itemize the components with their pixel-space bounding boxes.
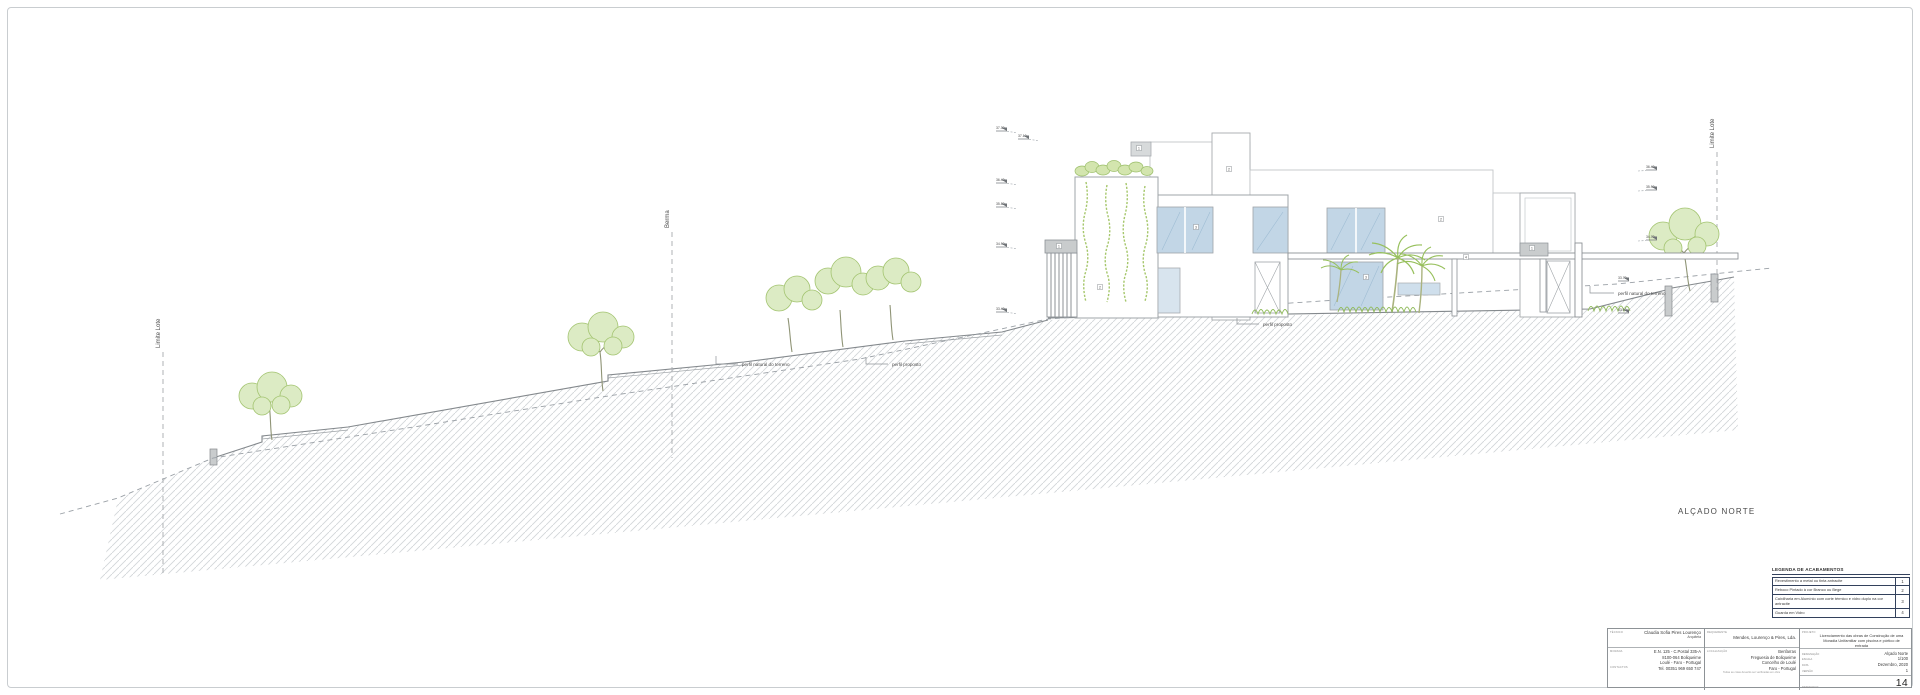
window [1327,208,1385,253]
architect-label: técnico [1610,631,1623,634]
title-block: técnico Claudia Sofia Pires Lourenço Arq… [1607,628,1912,688]
perfil-natural-label-right: perfil natural do terreno [1618,291,1666,296]
glass-door [1547,261,1570,313]
tree [1649,208,1719,291]
drawing-title: ALÇADO NORTE [1678,507,1755,516]
title-block-architect: técnico Claudia Sofia Pires Lourenço Arq… [1608,629,1705,690]
keynote: 4 [1465,256,1467,260]
sheet-number: 14 [1896,677,1908,689]
window [1253,207,1288,253]
keynote: 3 [1365,276,1367,280]
berma-label: Berma [665,210,671,228]
sheet-number-label: desenho nº [1802,686,1818,689]
entrance-fence [1045,240,1077,317]
keynote: 2 [1440,218,1442,222]
title-block-note: Todas as cotas deverão ser verificadas e… [1707,671,1796,674]
legend-row: Guarda em Vidro 4 [1773,609,1909,617]
limite-lote-left-label: Limite Lote [156,318,162,348]
project-label: projeto [1802,631,1816,634]
pool-edge [1398,283,1440,295]
address-label: morada [1610,650,1623,653]
keynote: 1 [1531,247,1533,251]
elevation-markers-left: 37.30 37.10 36.40 35.80 34.90 33.40 [996,126,1038,314]
glass-door [1255,262,1280,313]
keynote: 1 [1138,147,1140,151]
legend-row: Revestimento a metal ou tinta antracite … [1773,578,1909,587]
location-label: localização [1707,650,1727,653]
contact-label: contactos [1610,666,1628,669]
legend-row-number: 4 [1895,609,1909,617]
keynote: 2 [1099,286,1101,290]
tree-cluster [766,257,921,352]
tree [239,372,302,440]
title-block-project: projeto Licenciamento das obras de Const… [1800,629,1911,690]
window [1158,268,1180,313]
elevation-drawing: Limite Lote Berma Limite Lote [0,0,1920,695]
project-description: Licenciamento das obras de Construção de… [1802,630,1908,650]
terrain-hatch [100,277,1738,580]
legend-title: LEGENDA DE ACABAMENTOS [1772,567,1910,575]
legend-row-text: Revestimento a metal ou tinta antracite [1773,578,1895,586]
pergola-post [1540,259,1546,312]
window [1157,207,1213,253]
legend-row-text: Guarda em Vidro [1773,609,1895,617]
legend-row-text: Caixilharia em Alumínio com corte térmic… [1773,595,1895,608]
keynote: 3 [1195,226,1197,230]
keynote: 1 [1058,245,1060,249]
legend-row-number: 2 [1895,586,1909,594]
pergola-beam [1288,253,1738,259]
perfil-natural-label-left: perfil natural do terreno [742,362,790,367]
legend-row: Caixilharia em Alumínio com corte térmic… [1773,595,1909,609]
legend-row: Reboco Pintado à cor Branco ou Bege 2 [1773,586,1909,595]
pergola-column [1575,243,1582,317]
perfil-proposto-label-center: perfil proposto [1263,322,1293,327]
client-name: Mendes, Lourenço & Pires, Lda. [1733,635,1796,640]
finishes-legend: LEGENDA DE ACABAMENTOS Revestimento a me… [1772,567,1910,618]
legend-row-number: 1 [1895,578,1909,586]
roof-garden [1075,161,1153,177]
window [1330,262,1383,310]
architect-role: Arquiteta [1610,635,1701,639]
legend-row-text: Reboco Pintado à cor Branco ou Bege [1773,586,1895,594]
retaining-post-left [210,449,217,465]
title-block-client: requerente Mendes, Lourenço & Pires, Lda… [1705,629,1800,690]
perfil-proposto-label-left: perfil proposto [892,362,922,367]
client-label: requerente [1707,631,1727,634]
field-label: versão [1802,670,1813,674]
retaining-wall-right [1665,286,1672,316]
limite-lote-right-label: Limite Lote [1710,118,1716,148]
keynote: 2 [1228,168,1230,172]
field-value: 1 [1906,668,1908,674]
legend-row-number: 3 [1895,595,1909,608]
elevation-sheet: Limite Lote Berma Limite Lote [0,0,1920,695]
legend-table: Revestimento a metal ou tinta antracite … [1772,577,1910,618]
pergola-post [1452,259,1457,316]
